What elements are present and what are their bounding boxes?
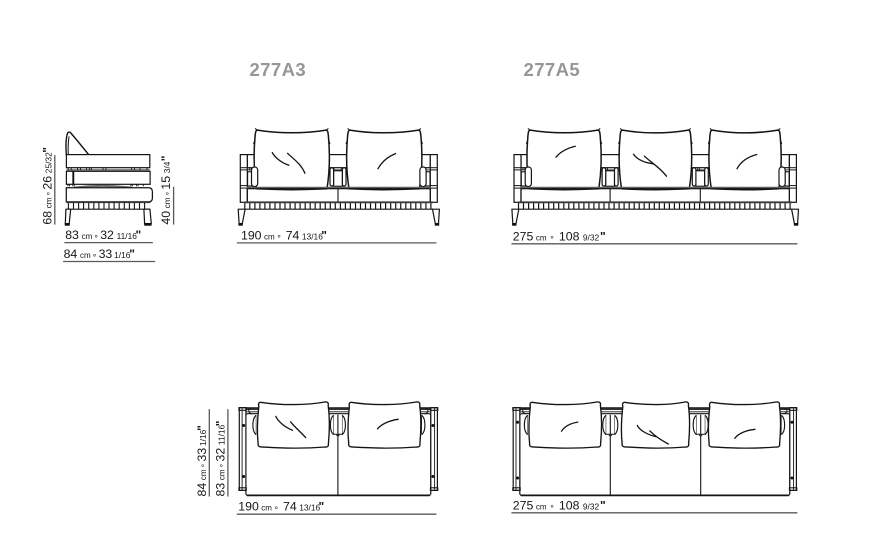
- svg-text:275cm°​1089/32": 275cm°​1089/32": [513, 498, 606, 513]
- svg-text:275cm°​1089/32": 275cm°​1089/32": [513, 229, 606, 244]
- svg-text:277A3: 277A3: [250, 59, 307, 80]
- svg-text:68cm°​2625/32": 68cm°​2625/32": [40, 147, 55, 225]
- svg-text:83cm°​3211/16": 83cm°​3211/16": [65, 228, 141, 243]
- svg-text:40cm°​153/4": 40cm°​153/4": [159, 155, 174, 224]
- svg-text:83cm°​3211/16": 83cm°​3211/16": [214, 420, 229, 496]
- svg-text:84cm°​331/16": 84cm°​331/16": [195, 425, 210, 496]
- svg-text:84cm°​331/16": 84cm°​331/16": [64, 247, 135, 262]
- svg-text:277A5: 277A5: [524, 59, 581, 80]
